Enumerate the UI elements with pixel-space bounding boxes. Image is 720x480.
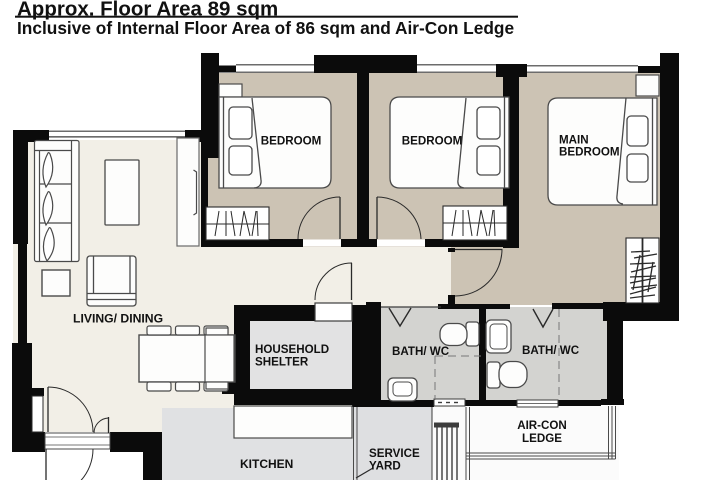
svg-text:BATH/ WC: BATH/ WC xyxy=(392,345,450,358)
svg-text:BEDROOM: BEDROOM xyxy=(559,146,620,159)
svg-text:SERVICE: SERVICE xyxy=(369,447,420,460)
svg-text:BEDROOM: BEDROOM xyxy=(261,135,322,148)
svg-text:LEDGE: LEDGE xyxy=(522,432,562,445)
svg-text:KITCHEN: KITCHEN xyxy=(240,457,293,471)
svg-text:LIVING/ DINING: LIVING/ DINING xyxy=(73,312,163,326)
svg-text:HOUSEHOLD: HOUSEHOLD xyxy=(255,343,329,356)
svg-text:Inclusive of Internal Floor Ar: Inclusive of Internal Floor Area of 86 s… xyxy=(17,18,514,38)
svg-text:BEDROOM: BEDROOM xyxy=(402,135,463,148)
svg-text:YARD: YARD xyxy=(369,460,401,473)
svg-text:BATH/ WC: BATH/ WC xyxy=(522,344,580,357)
svg-text:AIR-CON: AIR-CON xyxy=(517,419,567,432)
svg-text:SHELTER: SHELTER xyxy=(255,356,309,369)
